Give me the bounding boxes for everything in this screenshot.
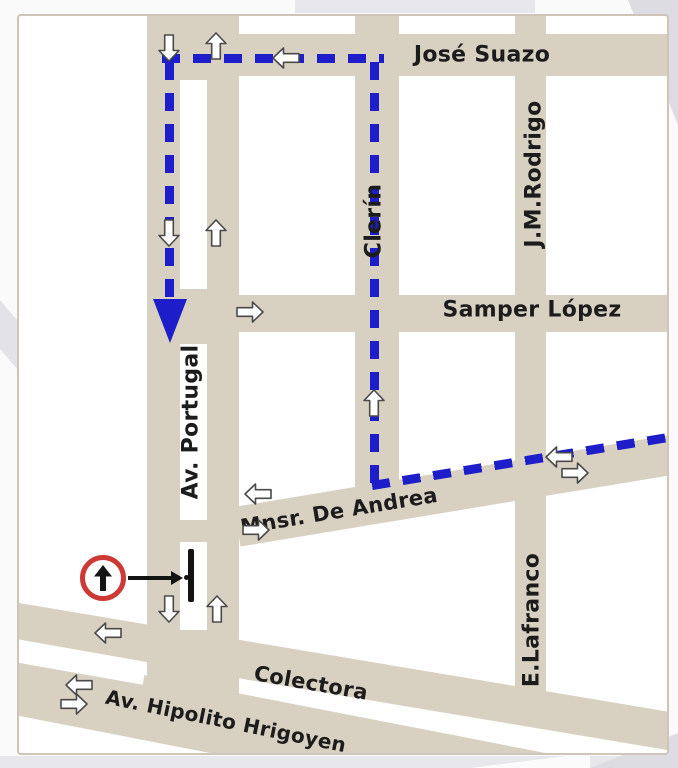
one-way-arrow-right-icon: [241, 518, 271, 542]
one-way-arrow-right-icon: [235, 300, 265, 324]
one-way-arrow-right-icon: [59, 692, 89, 716]
one-way-arrow-down-icon: [157, 33, 181, 63]
one-way-arrow-down-icon: [157, 218, 181, 248]
one-way-arrow-right-icon: [560, 461, 590, 485]
street-label-av-portugal: Av. Portugal: [179, 345, 204, 500]
up-arrow-icon: [90, 563, 116, 593]
route-segment-av-portugal: [165, 62, 174, 299]
median-av-portugal-top: [180, 80, 207, 289]
street-map: José Suazo Samper López Clerín J.M.Rodri…: [17, 14, 669, 755]
one-way-arrow-up-icon: [204, 218, 228, 248]
one-way-arrow-left-icon: [271, 46, 301, 70]
stop-bar-marker: [188, 549, 194, 602]
one-way-arrow-down-icon: [157, 594, 181, 624]
proceed-straight-sign-icon: [80, 555, 126, 601]
sign-pointer-line: [128, 576, 172, 580]
route-segment-clerin: [370, 62, 379, 492]
street-label-clerin: Clerín: [362, 184, 387, 258]
one-way-arrow-up-icon: [362, 388, 386, 418]
scan-artifact-top: [295, 0, 535, 13]
route-arrowhead-icon: [153, 299, 187, 343]
one-way-arrow-up-icon: [204, 31, 228, 61]
street-label-jm-rodrigo: J.M.Rodrigo: [522, 100, 547, 247]
street-label-samper-lopez: Samper López: [443, 298, 622, 323]
one-way-arrow-left-icon: [243, 482, 273, 506]
sign-pointer-arrowhead-icon: [171, 571, 183, 585]
street-label-e-lafranco: E.Lafranco: [520, 553, 545, 687]
scan-artifact-left: [0, 300, 18, 370]
one-way-arrow-up-icon: [205, 594, 229, 624]
one-way-arrow-left-icon: [93, 621, 123, 645]
street-label-jose-suazo: José Suazo: [414, 43, 550, 68]
